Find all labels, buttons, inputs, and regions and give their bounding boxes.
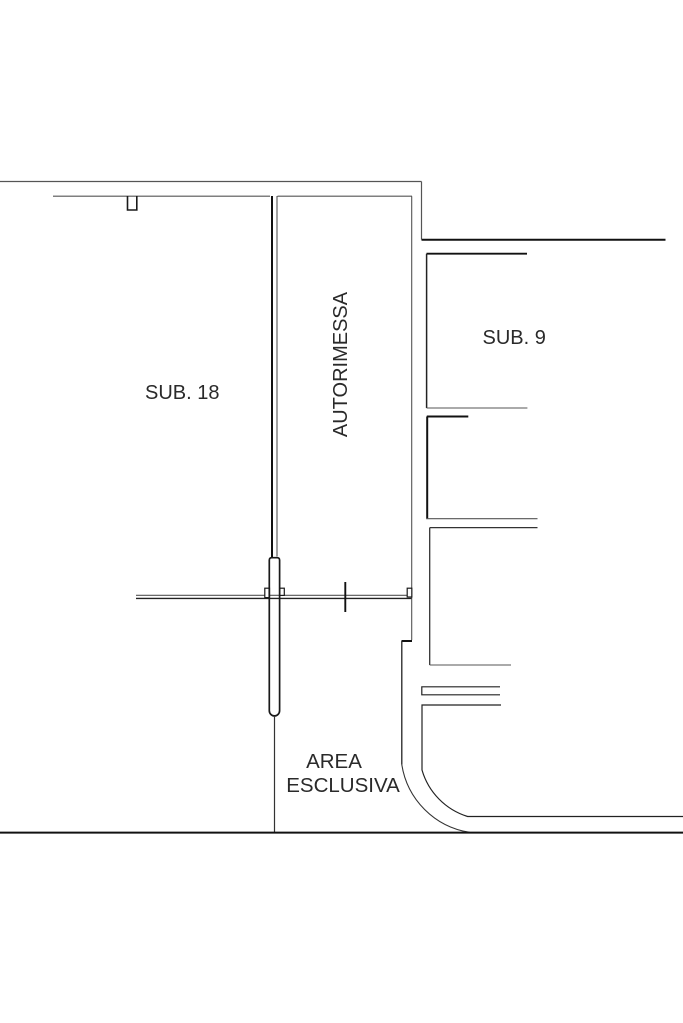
svg-text:SUB. 9: SUB. 9 — [483, 327, 546, 349]
svg-text:SUB. 18: SUB. 18 — [145, 382, 219, 404]
svg-text:AUTORIMESSA: AUTORIMESSA — [330, 291, 352, 437]
svg-text:AREA: AREA — [306, 750, 362, 773]
svg-text:ESCLUSIVA: ESCLUSIVA — [286, 774, 400, 797]
